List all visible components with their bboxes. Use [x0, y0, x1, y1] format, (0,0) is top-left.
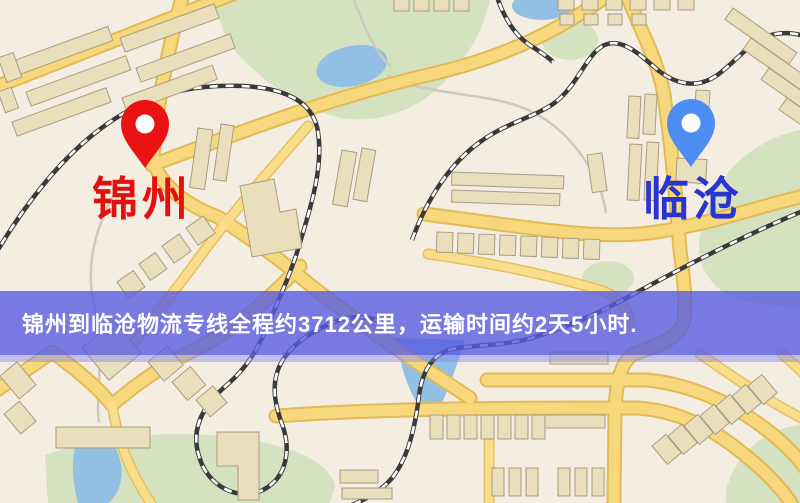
logistics-route-map: 锦州 临沧 锦州到临沧物流专线全程约3712公里，运输时间约2天5小时. [0, 0, 800, 503]
route-info-text: 锦州到临沧物流专线全程约3712公里，运输时间约2天5小时. [0, 307, 638, 339]
map-canvas [0, 0, 800, 503]
route-info-banner: 锦州到临沧物流专线全程约3712公里，运输时间约2天5小时. [0, 291, 800, 355]
